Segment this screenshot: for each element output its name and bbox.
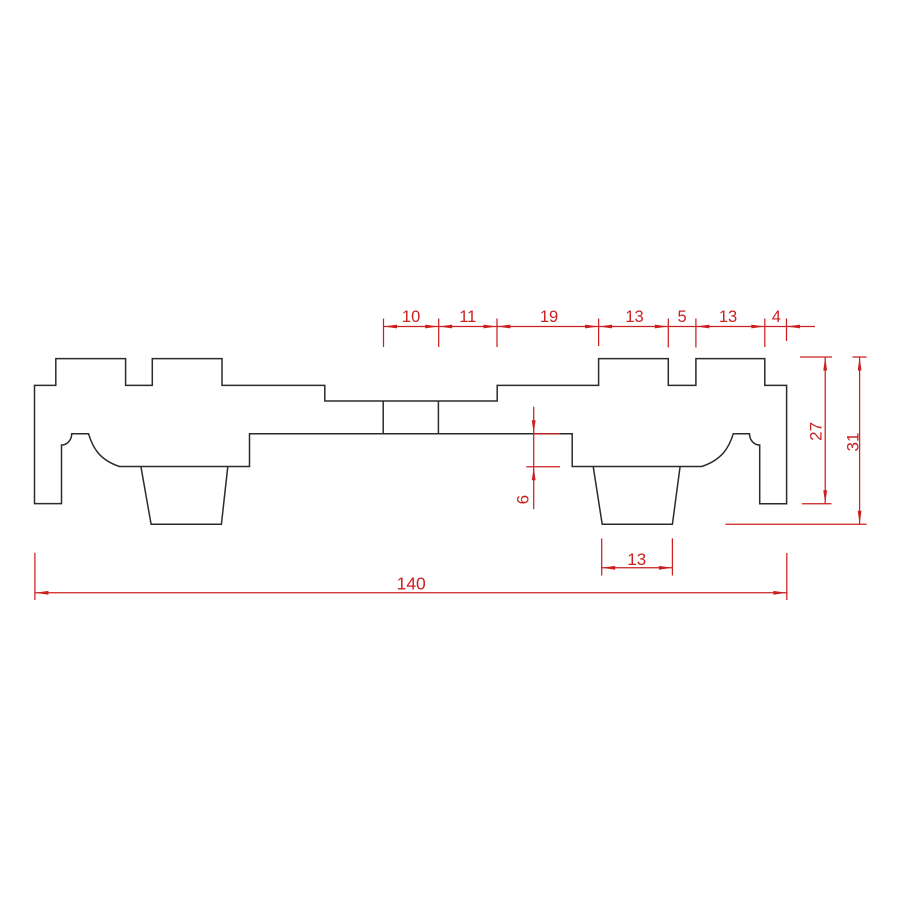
svg-text:11: 11	[459, 308, 476, 326]
svg-text:19: 19	[540, 308, 558, 326]
svg-text:27: 27	[806, 422, 825, 441]
svg-text:5: 5	[678, 308, 687, 326]
svg-text:13: 13	[719, 308, 737, 326]
svg-text:31: 31	[843, 433, 862, 452]
svg-text:13: 13	[625, 308, 643, 326]
svg-text:4: 4	[772, 308, 781, 326]
svg-text:13: 13	[627, 550, 646, 569]
svg-text:10: 10	[402, 308, 420, 326]
svg-text:140: 140	[397, 574, 426, 594]
svg-text:6: 6	[514, 495, 533, 504]
